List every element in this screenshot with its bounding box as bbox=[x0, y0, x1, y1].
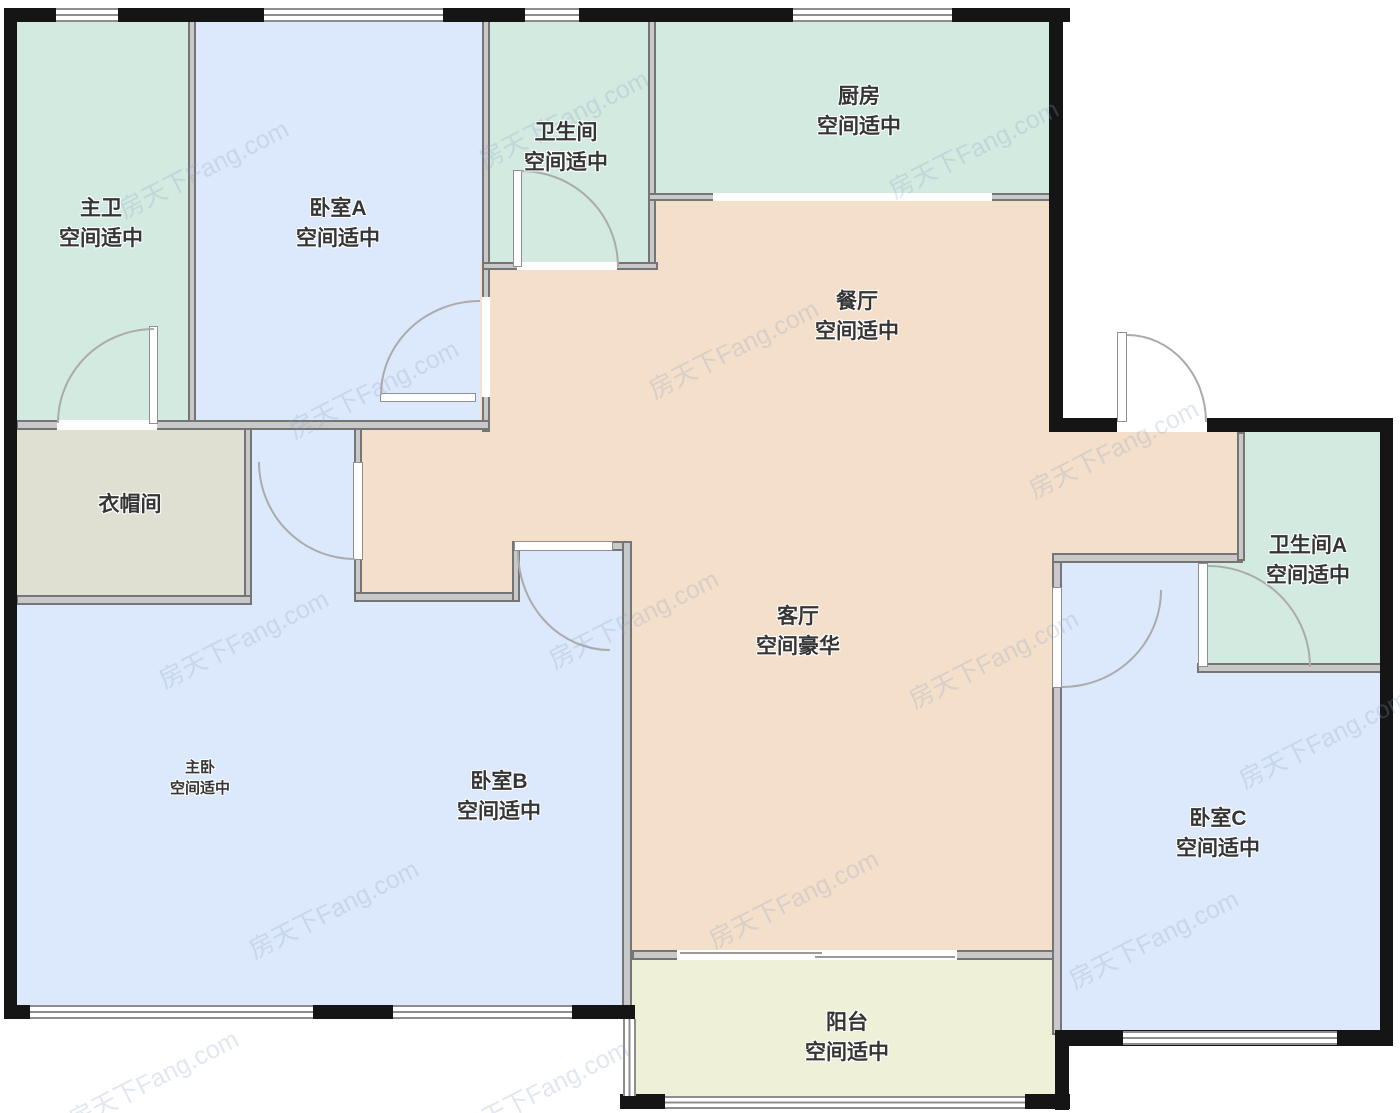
room-label-living: 客厅 空间豪华 bbox=[756, 602, 840, 662]
room-name: 主卫 bbox=[59, 194, 143, 224]
room-name: 卫生间 bbox=[524, 118, 608, 148]
room-label-kitchen: 厨房 空间适中 bbox=[817, 82, 901, 142]
room-name: 卧室C bbox=[1176, 804, 1260, 834]
floor-plan: 房天下Fang.com 房天下Fang.com 房天下Fang.com 房天下F… bbox=[0, 0, 1400, 1113]
sliding-door-panel bbox=[815, 956, 955, 958]
door-arc bbox=[1127, 334, 1207, 422]
room-grade: 空间适中 bbox=[457, 797, 541, 827]
window bbox=[623, 1019, 636, 1096]
room-floor-bath-hall bbox=[480, 262, 656, 434]
room-name: 餐厅 bbox=[815, 287, 899, 317]
room-grade: 空间豪华 bbox=[756, 632, 840, 662]
room-grade: 空间适中 bbox=[524, 148, 608, 178]
door-leaf bbox=[1117, 332, 1127, 422]
room-grade: 空间适中 bbox=[59, 224, 143, 254]
room-label-bathroom-a: 卫生间A 空间适中 bbox=[1266, 531, 1350, 591]
room-name: 主卧 bbox=[170, 757, 230, 778]
interior-wall bbox=[622, 541, 632, 1011]
interior-wall bbox=[648, 20, 656, 268]
interior-wall bbox=[1052, 553, 1243, 563]
room-name: 阳台 bbox=[805, 1008, 889, 1038]
room-label-bedroom-b: 卧室B 空间适中 bbox=[457, 767, 541, 827]
room-floor-master-bedroom bbox=[16, 598, 362, 1010]
room-label-cloakroom: 衣帽间 bbox=[99, 490, 162, 520]
watermark: 房天下Fang.com bbox=[452, 1030, 634, 1113]
room-name: 厨房 bbox=[817, 82, 901, 112]
door-leaf bbox=[514, 541, 613, 551]
room-label-bathroom: 卫生间 空间适中 bbox=[524, 118, 608, 178]
interior-wall bbox=[16, 595, 252, 605]
room-label-bedroom-a: 卧室A 空间适中 bbox=[296, 194, 380, 254]
window bbox=[793, 8, 952, 22]
window bbox=[393, 1005, 572, 1019]
room-label-dining: 餐厅 空间适中 bbox=[815, 287, 899, 347]
watermark: 房天下Fang.com bbox=[62, 1020, 244, 1113]
room-grade: 空间适中 bbox=[1266, 561, 1350, 591]
window bbox=[56, 8, 118, 22]
window bbox=[264, 8, 443, 22]
room-grade: 空间适中 bbox=[170, 778, 230, 799]
exterior-wall bbox=[620, 1094, 665, 1109]
interior-wall bbox=[244, 428, 252, 605]
door-leaf bbox=[1198, 563, 1208, 667]
interior-wall bbox=[1237, 432, 1245, 561]
window bbox=[525, 8, 579, 22]
room-label-master-bath: 主卫 空间适中 bbox=[59, 194, 143, 254]
room-label-bedroom-c: 卧室C 空间适中 bbox=[1176, 804, 1260, 864]
door-leaf bbox=[1052, 587, 1062, 688]
window bbox=[665, 1096, 1025, 1109]
interior-wall bbox=[188, 20, 196, 430]
room-grade: 空间适中 bbox=[1176, 834, 1260, 864]
exterior-wall bbox=[4, 8, 17, 1019]
room-name: 客厅 bbox=[756, 602, 840, 632]
room-name: 卫生间A bbox=[1266, 531, 1350, 561]
exterior-wall bbox=[1025, 1094, 1070, 1109]
exterior-wall bbox=[1049, 418, 1393, 432]
exterior-wall bbox=[1049, 8, 1063, 432]
kitchen-opening bbox=[713, 193, 992, 201]
room-label-balcony: 阳台 空间适中 bbox=[805, 1008, 889, 1068]
door-opening bbox=[482, 297, 490, 397]
room-label-master-bedroom: 主卧 空间适中 bbox=[170, 757, 230, 799]
room-floor-living bbox=[626, 430, 1062, 958]
window bbox=[30, 1005, 313, 1019]
room-grade: 空间适中 bbox=[296, 224, 380, 254]
room-grade: 空间适中 bbox=[805, 1038, 889, 1068]
room-name: 卧室A bbox=[296, 194, 380, 224]
room-floor-entry-hall bbox=[1062, 432, 1243, 557]
room-grade: 空间适中 bbox=[817, 112, 901, 142]
sliding-door-panel bbox=[680, 952, 822, 954]
exterior-wall bbox=[1380, 418, 1393, 1046]
room-grade: 空间适中 bbox=[815, 317, 899, 347]
room-name: 卧室B bbox=[457, 767, 541, 797]
interior-wall bbox=[354, 592, 520, 602]
room-name: 衣帽间 bbox=[99, 490, 162, 520]
window bbox=[1123, 1031, 1337, 1045]
room-floor-hallway bbox=[356, 428, 626, 553]
